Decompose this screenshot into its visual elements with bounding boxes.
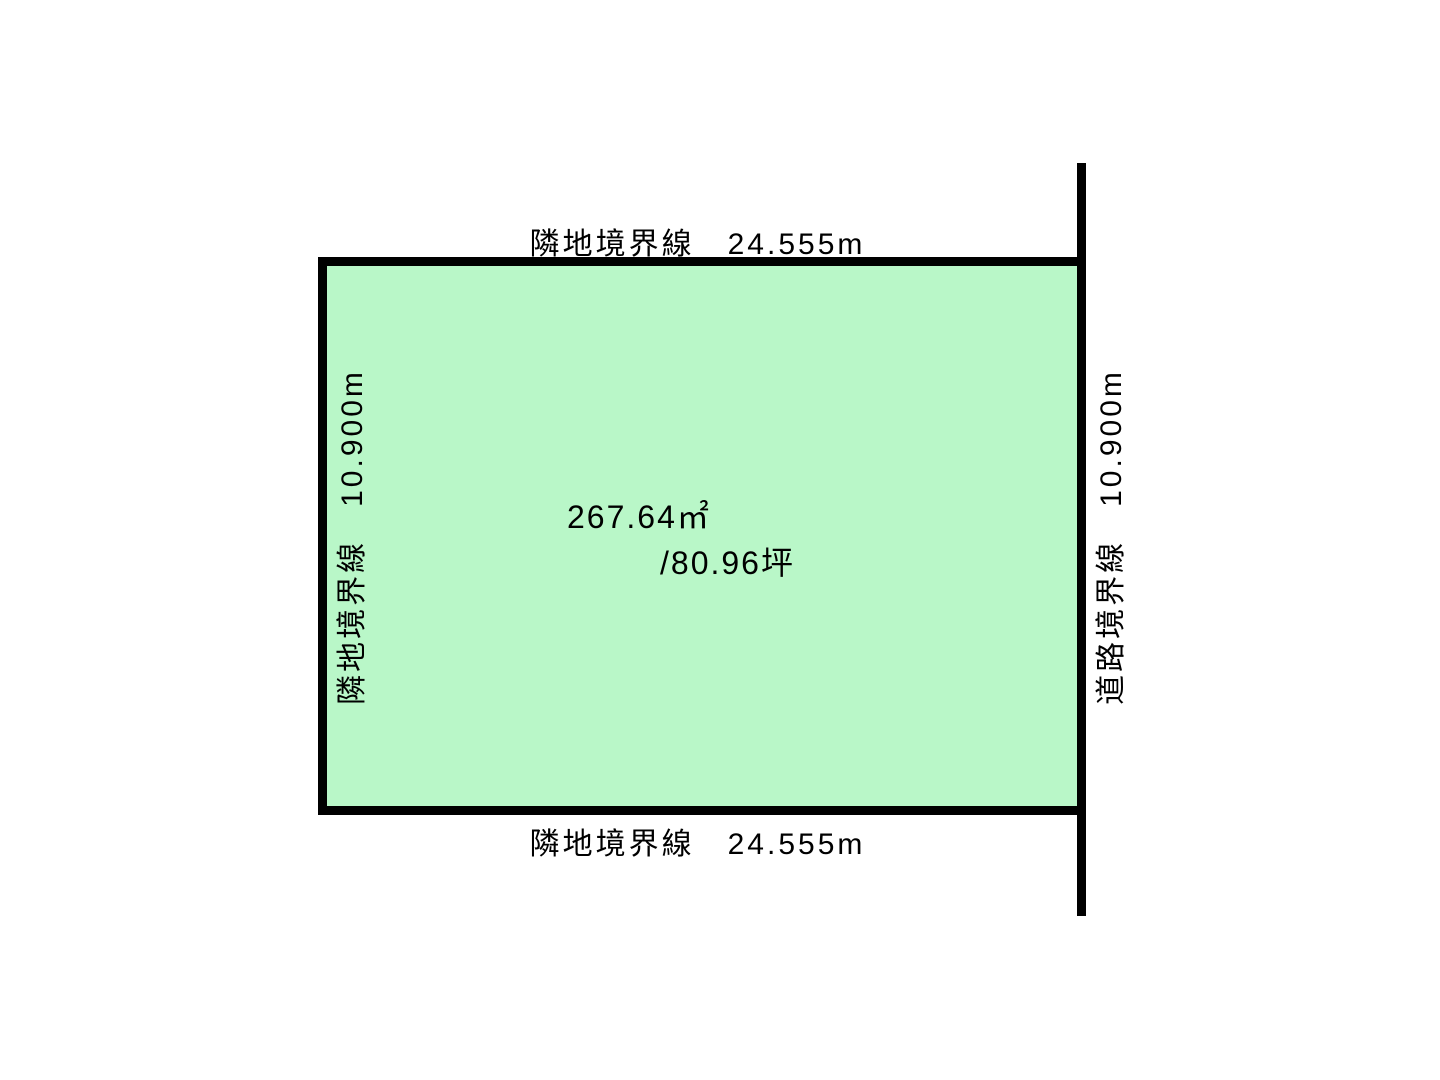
area-label: 267.64㎡ /80.96坪	[567, 501, 795, 579]
bottom-boundary-label: 隣地境界線 24.555m	[318, 819, 1077, 863]
area-tsubo: /80.96坪	[660, 547, 795, 579]
right-boundary-label: 道路境界線 10.900m	[1086, 369, 1130, 705]
road-boundary-line	[1077, 163, 1086, 916]
left-boundary-label: 隣地境界線 10.900m	[327, 369, 371, 705]
land-plot-diagram: 隣地境界線 24.555m 隣地境界線 24.555m 隣地境界線 10.900…	[0, 0, 1440, 1080]
area-square-meters: 267.64㎡	[567, 501, 795, 533]
top-boundary-label: 隣地境界線 24.555m	[318, 219, 1077, 263]
